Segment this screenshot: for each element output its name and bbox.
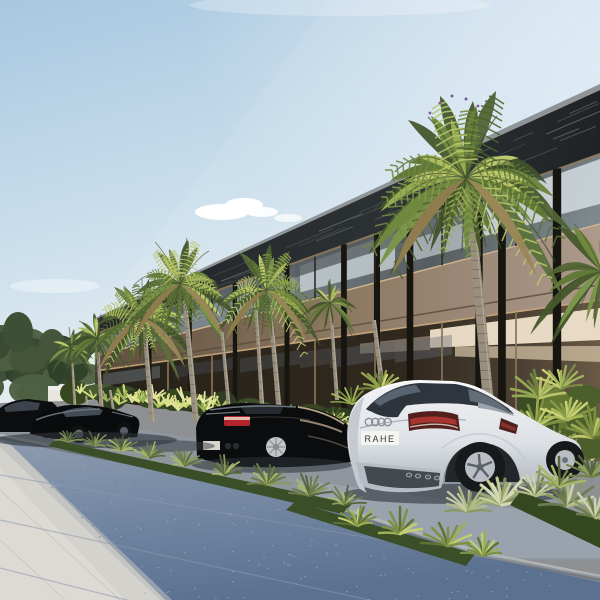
svg-text:RAHE: RAHE — [364, 434, 395, 444]
